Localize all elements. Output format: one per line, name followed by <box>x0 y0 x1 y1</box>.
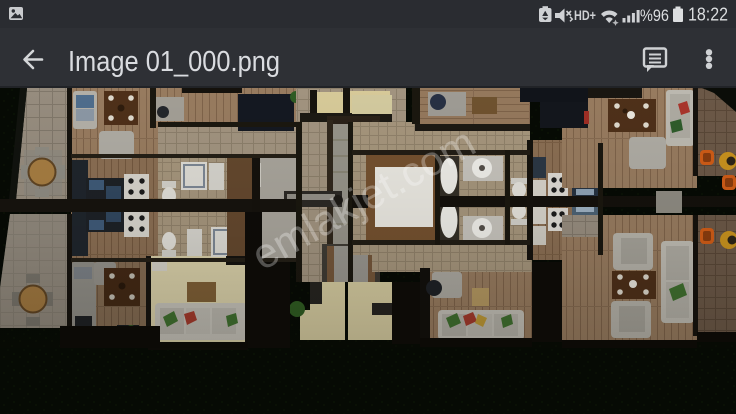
svg-text:%96: %96 <box>640 7 669 25</box>
svg-text:HD+: HD+ <box>574 7 596 23</box>
svg-text:Image 01_000.png: Image 01_000.png <box>68 46 280 78</box>
svg-text:18:22: 18:22 <box>688 5 728 25</box>
